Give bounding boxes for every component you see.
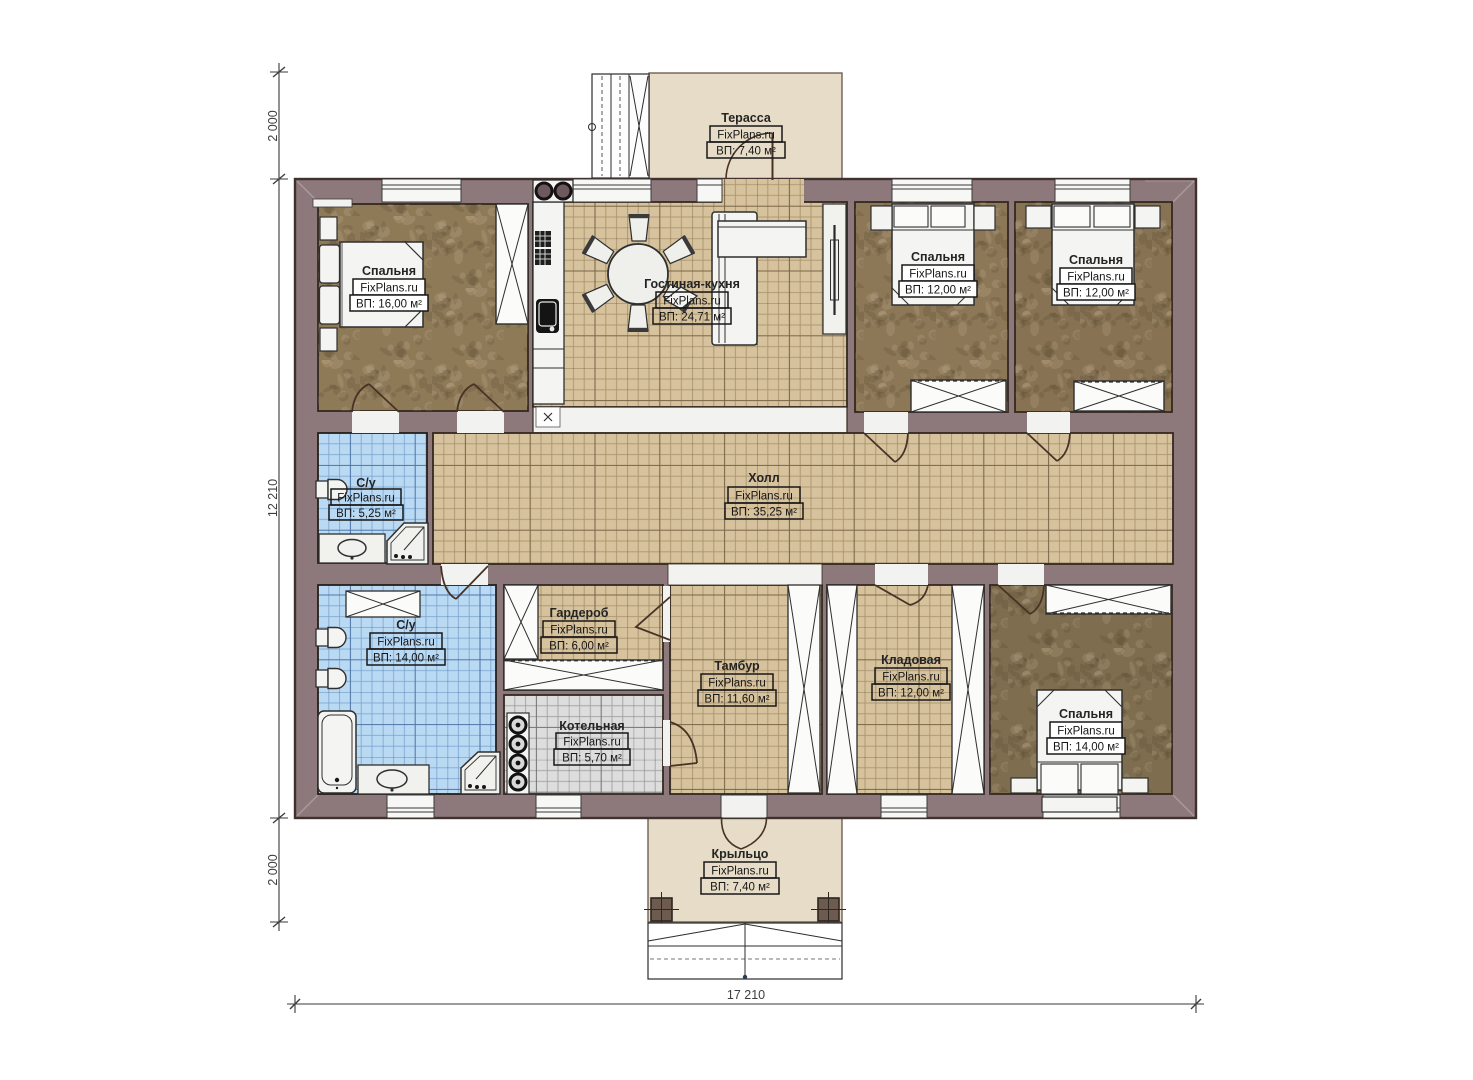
svg-text:ВП: 5,25 м²: ВП: 5,25 м² [336,508,396,520]
svg-text:Холл: Холл [748,471,779,485]
svg-text:ВП: 12,00 м²: ВП: 12,00 м² [1063,288,1129,300]
svg-text:ВП: 6,00 м²: ВП: 6,00 м² [549,641,609,653]
svg-text:ВП: 5,70 м²: ВП: 5,70 м² [562,753,622,765]
svg-text:2 000: 2 000 [266,110,280,141]
svg-text:Гардероб: Гардероб [549,606,608,620]
svg-text:FixPlans.ru: FixPlans.ru [717,130,775,142]
svg-text:Спальня: Спальня [911,250,965,264]
svg-text:ВП: 11,60 м²: ВП: 11,60 м² [704,694,769,706]
svg-text:Котельная: Котельная [559,719,624,733]
svg-text:FixPlans.ru: FixPlans.ru [735,491,793,503]
svg-text:FixPlans.ru: FixPlans.ru [360,283,418,295]
svg-text:ВП: 7,40 м²: ВП: 7,40 м² [716,146,776,158]
svg-text:12 210: 12 210 [266,479,280,517]
svg-text:Тамбур: Тамбур [714,659,760,673]
svg-text:FixPlans.ru: FixPlans.ru [377,637,435,649]
svg-text:Спальня: Спальня [1059,707,1113,721]
svg-text:ВП: 12,00 м²: ВП: 12,00 м² [905,285,971,297]
svg-text:Терасса: Терасса [721,111,772,125]
svg-text:FixPlans.ru: FixPlans.ru [711,866,769,878]
svg-text:2 000: 2 000 [266,854,280,885]
svg-text:FixPlans.ru: FixPlans.ru [909,269,967,281]
svg-text:Спальня: Спальня [1069,253,1123,267]
svg-text:FixPlans.ru: FixPlans.ru [663,296,721,308]
svg-text:ВП: 12,00 м²: ВП: 12,00 м² [878,688,944,700]
svg-text:FixPlans.ru: FixPlans.ru [1067,272,1125,284]
svg-text:ВП: 7,40 м²: ВП: 7,40 м² [710,882,770,894]
svg-text:ВП: 16,00 м²: ВП: 16,00 м² [356,299,422,311]
svg-text:ВП: 14,00 м²: ВП: 14,00 м² [373,653,439,665]
svg-text:FixPlans.ru: FixPlans.ru [1057,726,1115,738]
svg-text:ВП: 35,25 м²: ВП: 35,25 м² [731,507,797,519]
svg-text:ВП: 24,71 м²: ВП: 24,71 м² [659,312,725,324]
svg-text:FixPlans.ru: FixPlans.ru [550,625,608,637]
svg-text:FixPlans.ru: FixPlans.ru [337,493,395,505]
svg-text:17 210: 17 210 [727,988,765,1002]
svg-text:FixPlans.ru: FixPlans.ru [563,737,621,749]
svg-text:FixPlans.ru: FixPlans.ru [882,672,940,684]
svg-text:ВП: 14,00 м²: ВП: 14,00 м² [1053,742,1119,754]
svg-text:FixPlans.ru: FixPlans.ru [708,678,766,690]
svg-text:С/у: С/у [396,618,416,632]
svg-text:С/у: С/у [356,476,376,490]
svg-text:Спальня: Спальня [362,264,416,278]
svg-text:Кладовая: Кладовая [881,653,941,667]
svg-text:Крыльцо: Крыльцо [712,847,769,861]
svg-text:Гостиная-кухня: Гостиная-кухня [644,277,740,291]
